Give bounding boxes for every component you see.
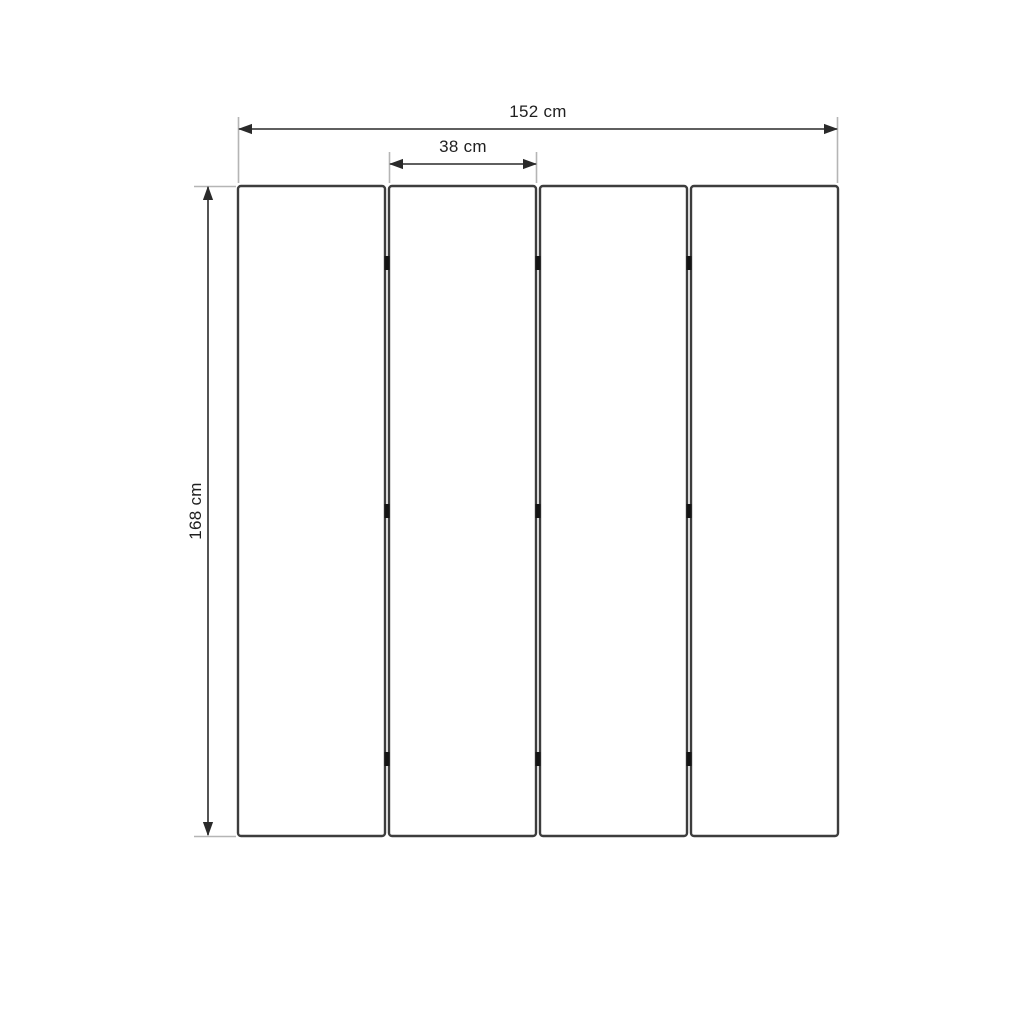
diagram-drawing xyxy=(0,0,1024,1024)
hinge-icon xyxy=(536,256,541,270)
panel-2 xyxy=(389,186,536,836)
hinge-icon xyxy=(687,256,692,270)
panel-1 xyxy=(238,186,385,836)
hinge-icon xyxy=(385,752,390,766)
panel-3 xyxy=(540,186,687,836)
hinge-icon xyxy=(536,504,541,518)
hinge-icon xyxy=(385,256,390,270)
dimension-diagram: 152 cm 38 cm 168 cm xyxy=(0,0,1024,1024)
panel-4 xyxy=(691,186,838,836)
hinge-icon xyxy=(385,504,390,518)
total-width-label: 152 cm xyxy=(509,102,567,122)
panel-width-label: 38 cm xyxy=(439,137,487,157)
hinge-icon xyxy=(536,752,541,766)
height-label: 168 cm xyxy=(186,482,206,540)
hinge-icon xyxy=(687,504,692,518)
hinge-icon xyxy=(687,752,692,766)
